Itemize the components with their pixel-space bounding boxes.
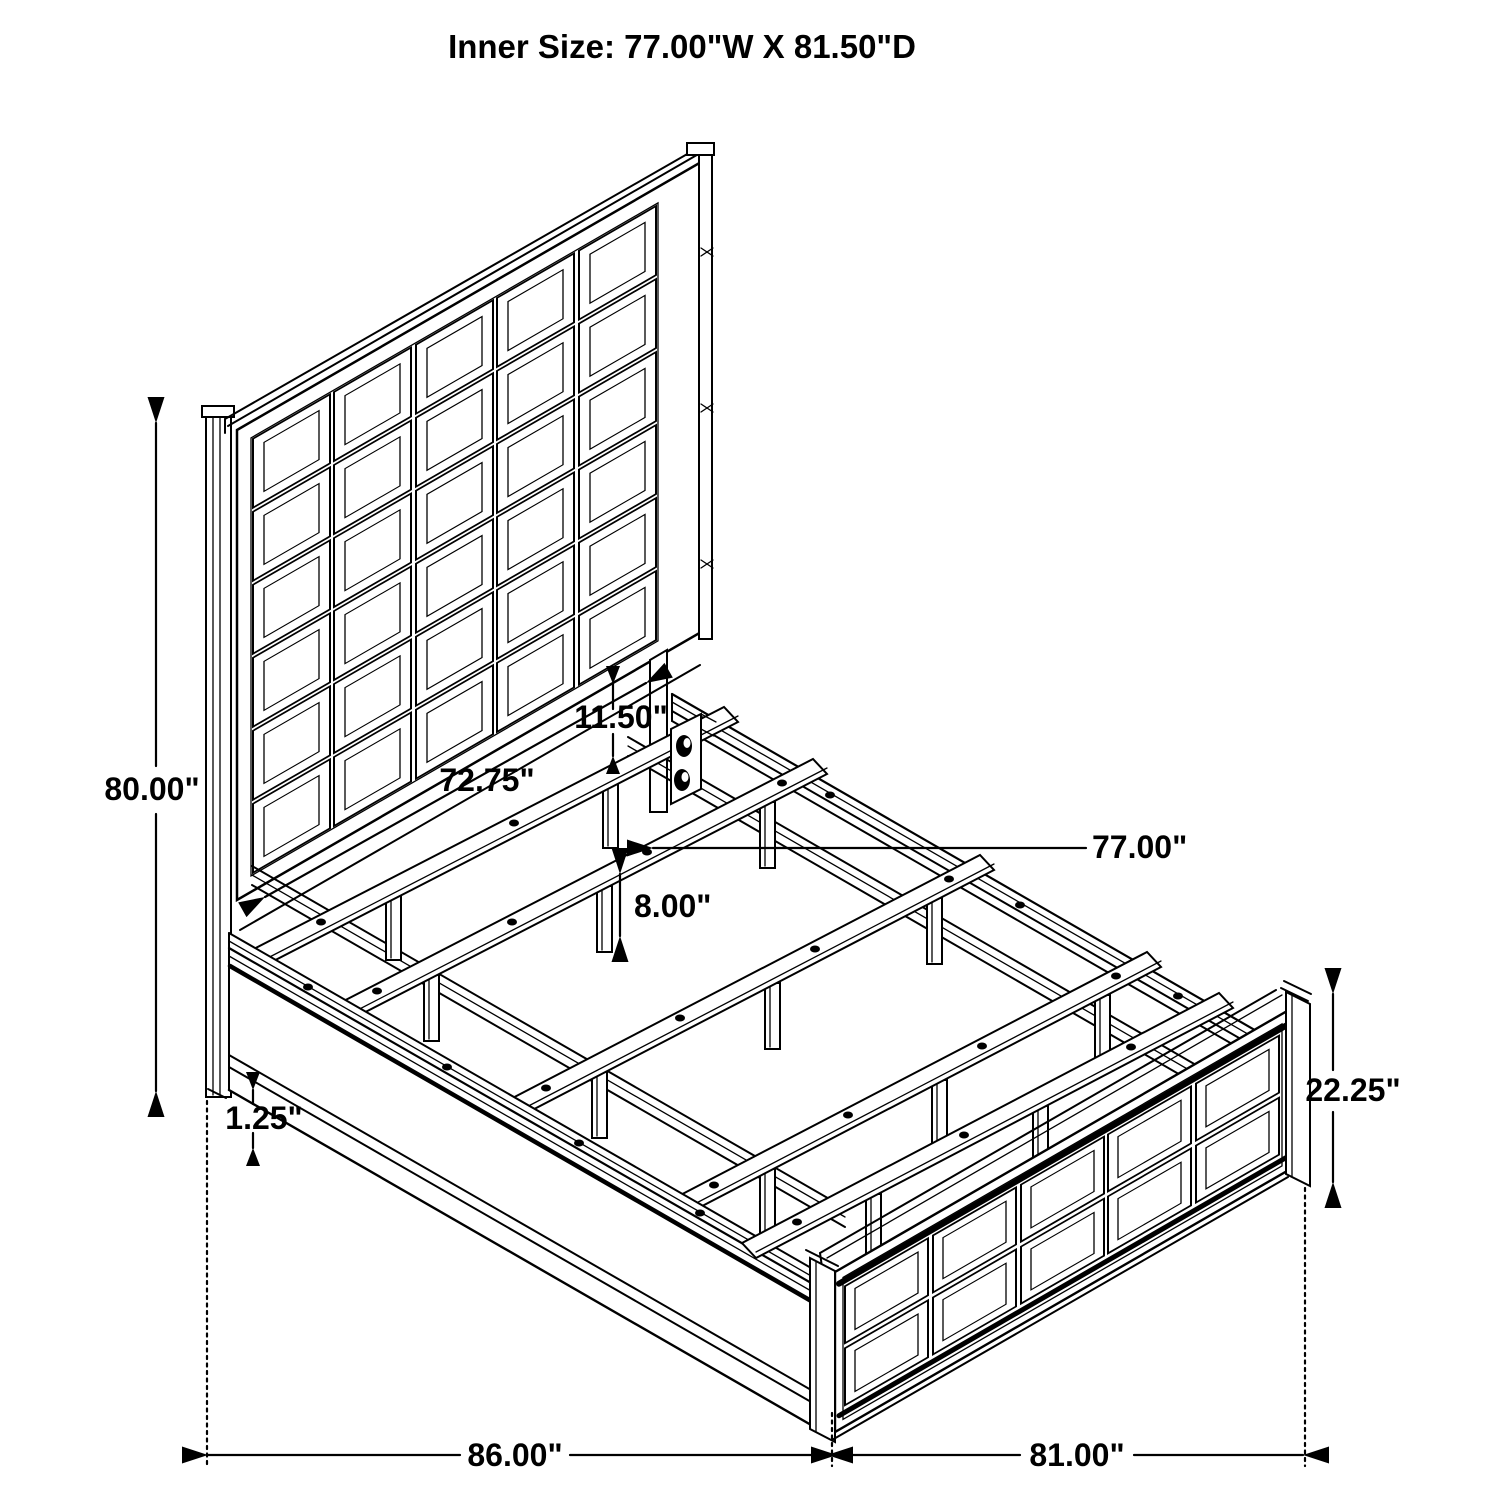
footboard-left-post <box>806 1250 838 1442</box>
slat-leg <box>424 975 439 1041</box>
screw-dot <box>1173 993 1183 1000</box>
screw-dot <box>695 1210 705 1217</box>
screw-dot <box>777 780 787 787</box>
screw-dot <box>574 1140 584 1147</box>
dim-overall-width: 81.00" <box>837 1437 1303 1473</box>
dim-label-overall-width: 81.00" <box>1029 1437 1124 1473</box>
slat-leg <box>765 983 780 1049</box>
screw-dot <box>1111 973 1121 980</box>
slat-leg <box>592 1072 607 1138</box>
screw-dot <box>843 1112 853 1119</box>
screw-dot <box>509 820 519 827</box>
dim-label-headboard-width: 72.75" <box>439 762 534 798</box>
screw-dot <box>442 1064 452 1071</box>
screw-dot <box>709 1182 719 1189</box>
screw-dot <box>1015 902 1025 909</box>
dim-label-overall-depth: 86.00" <box>467 1437 562 1473</box>
dim-inner-width: 77.00" <box>653 829 1187 865</box>
dim-leg-height: 8.00" <box>620 874 711 936</box>
dim-label-overall-height: 80.00" <box>104 771 199 807</box>
screw-dot <box>372 988 382 995</box>
screw-dot <box>675 1015 685 1022</box>
screw-dot <box>507 919 517 926</box>
bed-dimension-diagram: 80.00" 72.75" 11.50" 8.00" 77.00" 22.25" <box>0 0 1500 1500</box>
dim-label-panel-gap: 11.50" <box>574 699 667 735</box>
screw-dot <box>792 1219 802 1226</box>
support-leg <box>603 782 618 848</box>
screw-dot <box>541 1085 551 1092</box>
dim-label-inner-width: 77.00" <box>1092 829 1187 865</box>
screw-dot <box>977 1043 987 1050</box>
dim-footboard-height: 22.25" <box>1305 994 1400 1182</box>
dim-overall-depth: 86.00" <box>208 1437 827 1473</box>
slat-leg <box>927 898 942 964</box>
dim-label-leg-height: 8.00" <box>634 888 711 924</box>
screw-dot <box>1126 1044 1136 1051</box>
screw-dot <box>303 984 313 991</box>
diagram-title: Inner Size: 77.00"W X 81.50"D <box>448 28 916 65</box>
screw-dot <box>944 876 954 883</box>
screw-dot <box>825 792 835 799</box>
dim-label-base-clearance: 1.25" <box>225 1100 302 1136</box>
slat-leg <box>597 886 612 952</box>
screw-dot <box>316 919 326 926</box>
footboard-panel <box>835 1009 1290 1432</box>
dim-label-footboard-height: 22.25" <box>1305 1072 1400 1108</box>
dim-overall-height: 80.00" <box>104 423 199 1091</box>
support-leg <box>386 894 401 960</box>
screw-dot <box>810 946 820 953</box>
slat-leg <box>760 802 775 868</box>
screw-dot <box>959 1132 969 1139</box>
screw-dot <box>642 849 652 856</box>
slat-leg <box>760 1169 775 1235</box>
